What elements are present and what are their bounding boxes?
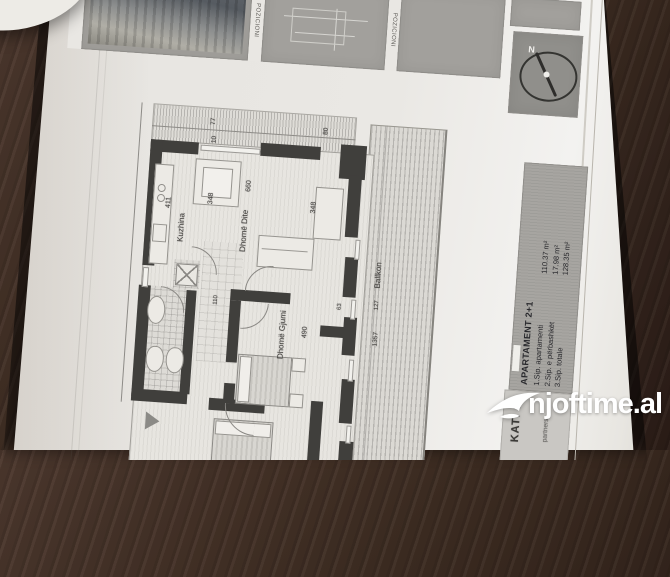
titleblock-blank-panel [396, 0, 505, 78]
info-panel-text: APARTAMENT 2+1 1.Sip. apartamenti 110.37… [519, 163, 588, 388]
dim-1357: 1357 [372, 332, 380, 347]
table-top [201, 167, 233, 199]
dim-348b: 348 [310, 202, 318, 214]
titleblock-corner-panel [510, 0, 582, 31]
nightstand [289, 393, 304, 408]
dim-490: 490 [301, 326, 309, 338]
sketch-outline [290, 8, 346, 46]
dim-127: 127 [374, 300, 381, 310]
dim-411: 411 [165, 197, 173, 209]
dim-660: 660 [245, 180, 253, 192]
compass-panel: N [508, 31, 584, 118]
paper-crease [67, 0, 106, 512]
watermark-text: njoftime.al [528, 388, 662, 421]
drawing-sheet-content: POZICIONI POZICIONI N [16, 0, 599, 562]
dim-77: 77 [210, 118, 217, 126]
apartment-info-panel: APARTAMENT 2+1 1.Sip. apartamenti 110.37… [508, 162, 588, 394]
wall [320, 325, 351, 338]
photo-of-floor-plan-document: { "photo": { "watermark": { "text": "njo… [0, 0, 670, 450]
room-label-balcony: Ballkon [373, 262, 384, 289]
wall [343, 257, 359, 298]
kitchen-stove [152, 223, 167, 242]
dim-348a: 348 [207, 192, 215, 204]
building-photo-thumbnail [88, 0, 248, 54]
north-label: N [528, 44, 535, 54]
watermark: njoftime.al [486, 374, 670, 444]
entry-arrow-icon [145, 411, 160, 430]
nightstand [291, 358, 306, 373]
info-row-value: 128.35 m² [561, 241, 574, 275]
dim-110: 110 [213, 295, 220, 305]
pozicioni-label: POZICIONI [389, 12, 397, 47]
floor-plan: Kuzhina Dhomë Dite Dhomë Gjumi Ballkon 7… [127, 139, 446, 558]
paper-crease [74, 29, 109, 513]
dining-table [313, 187, 345, 241]
titleblock-sketch-panel [261, 0, 390, 70]
dim-10: 10 [210, 136, 217, 144]
pozicioni-label: POZICIONI [253, 3, 261, 38]
dim-80: 80 [322, 127, 329, 135]
dim-63: 63 [337, 303, 343, 310]
